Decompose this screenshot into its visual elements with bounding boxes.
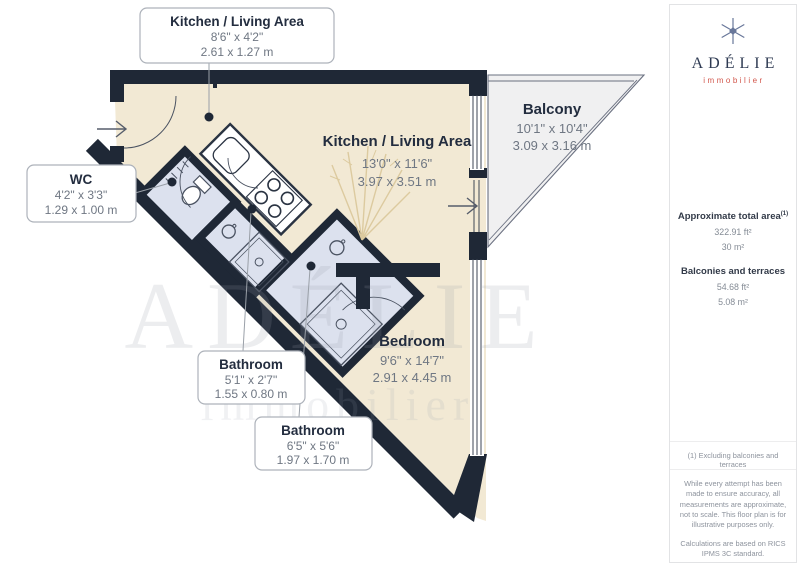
left-wall-lower: [110, 146, 124, 162]
svg-text:1.29 x 1.00 m: 1.29 x 1.00 m: [45, 203, 118, 217]
svg-text:5'1" x 2'7": 5'1" x 2'7": [225, 373, 277, 387]
bedroom-room-metric: 2.91 x 4.45 m: [373, 370, 452, 385]
disclaimer: While every attempt has been made to ens…: [670, 469, 796, 562]
floorplan-drawing: ADÉLIE immobilier Kitchen / Living Area …: [0, 0, 668, 566]
total-area-metric: 30 m²: [670, 242, 796, 252]
balcony-room-imperial: 10'1" x 10'4": [516, 121, 588, 136]
svg-text:8'6" x 4'2": 8'6" x 4'2": [211, 30, 263, 44]
bedroom-room-title: Bedroom: [379, 333, 445, 350]
top-wall: [110, 70, 487, 84]
svg-text:1.55 x 0.80 m: 1.55 x 0.80 m: [215, 387, 288, 401]
footnote-ref: (1): [781, 211, 788, 217]
kitchen-room-metric: 3.97 x 3.51 m: [358, 174, 437, 189]
balconies-metric: 5.08 m²: [670, 297, 796, 307]
floorplan-page: ADÉLIE immobilier Kitchen / Living Area …: [0, 0, 800, 566]
balcony-room-metric: 3.09 x 3.16 m: [513, 138, 592, 153]
brand-name: ADÉLIE: [670, 55, 796, 73]
kitchen-area-label-box: Kitchen / Living Area 8'6" x 4'2" 2.61 x…: [140, 8, 334, 63]
kitchen-room-title: Kitchen / Living Area: [323, 133, 472, 150]
svg-text:4'2" x 3'3": 4'2" x 3'3": [55, 188, 107, 202]
brand-tagline: immobilier: [670, 76, 796, 85]
brand-logo: ADÉLIE immobilier: [670, 5, 796, 85]
svg-text:WC: WC: [70, 172, 93, 187]
info-sidebar: ADÉLIE immobilier Approximate total area…: [669, 4, 797, 563]
svg-text:6'5" x 5'6": 6'5" x 5'6": [287, 439, 339, 453]
balconies-imperial: 54.68 ft²: [670, 282, 796, 292]
area-summary: Approximate total area(1) 322.91 ft² 30 …: [670, 211, 796, 307]
watermark-brand: ADÉLIE: [125, 263, 552, 369]
left-wall-upper: [110, 70, 124, 102]
balcony-room-title: Balcony: [523, 101, 582, 118]
disclaimer-text-2: Calculations are based on RICS IPMS 3C s…: [679, 539, 787, 560]
svg-text:Bathroom: Bathroom: [281, 423, 345, 438]
kitchen-room-imperial: 13'0" x 11'6": [362, 156, 433, 171]
svg-text:1.97 x 1.70 m: 1.97 x 1.70 m: [277, 453, 350, 467]
total-area-label: Approximate total area(1): [670, 211, 796, 222]
disclaimer-text-1: While every attempt has been made to ens…: [679, 479, 787, 531]
bathroom-large-label-box: Bathroom 6'5" x 5'6" 1.97 x 1.70 m: [255, 417, 372, 470]
area-footnote: (1) Excluding balconies and terraces: [670, 441, 796, 469]
bedroom-room-imperial: 9'6" x 14'7": [380, 353, 444, 368]
wc-label-box: WC 4'2" x 3'3" 1.29 x 1.00 m: [27, 165, 136, 222]
snowflake-icon: [719, 17, 747, 45]
bathroom-small-label-box: Bathroom 5'1" x 2'7" 1.55 x 0.80 m: [198, 351, 305, 404]
svg-text:2.61 x 1.27 m: 2.61 x 1.27 m: [201, 45, 274, 59]
svg-text:Bathroom: Bathroom: [219, 357, 283, 372]
balconies-label: Balconies and terraces: [670, 266, 796, 277]
total-area-imperial: 322.91 ft²: [670, 227, 796, 237]
svg-text:Kitchen / Living Area: Kitchen / Living Area: [170, 14, 304, 29]
